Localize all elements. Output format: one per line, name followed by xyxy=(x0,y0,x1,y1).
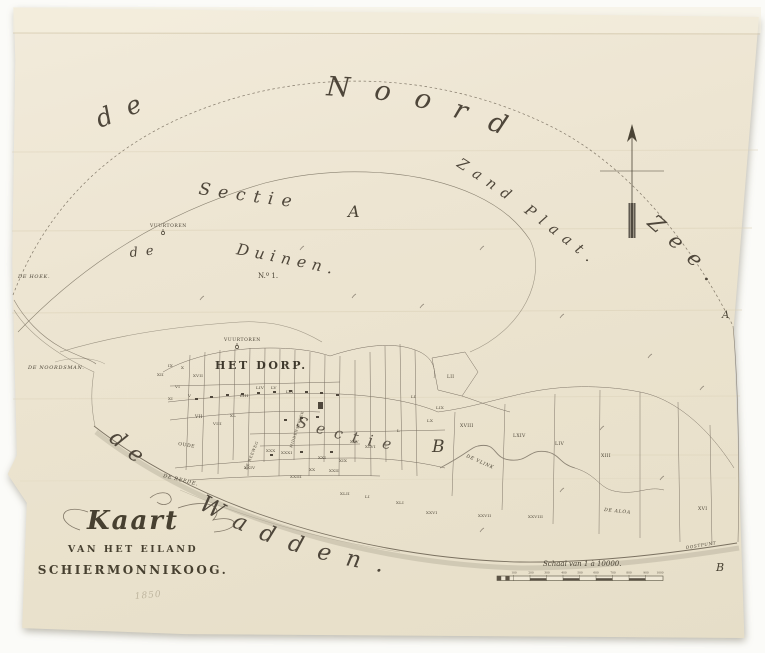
sectie-b-letter: B xyxy=(431,437,445,457)
scanned-map-page: Schaal van 1 à 10000. Noord Zee. Zand Pl… xyxy=(0,0,765,653)
map-label: LVI xyxy=(286,389,294,394)
map-label: V xyxy=(187,393,191,398)
pencil-year: 1850 xyxy=(134,590,162,602)
map-label: LV xyxy=(271,385,277,390)
edge-marker-a: A xyxy=(721,310,729,321)
village-label: HET DORP. xyxy=(215,359,308,372)
map-label: XL xyxy=(230,413,236,418)
map-label: XVI xyxy=(698,506,707,512)
map-title: Kaart xyxy=(86,506,179,536)
lighthouse-icon xyxy=(161,229,238,349)
de-north-word: de xyxy=(91,83,160,133)
map-label: XIII xyxy=(601,453,611,459)
sea-lettering: Noord Zee. Zand Plaat. Wadden. Duinen. S… xyxy=(91,71,730,580)
duinen-word: Duinen. xyxy=(234,240,340,279)
map-label: 800 xyxy=(626,571,632,575)
map-label: 100 xyxy=(511,571,517,575)
sectie-a-letter: A xyxy=(346,202,360,221)
map-label: XVII xyxy=(193,373,203,378)
map-label: XXVII xyxy=(478,513,491,518)
map-label: XXVI xyxy=(426,510,437,515)
map-label: XXX xyxy=(266,448,275,453)
map-label: XLV xyxy=(350,439,359,444)
map-label: XII xyxy=(157,372,164,377)
zand-plaat-word: Zand Plaat. xyxy=(453,155,602,270)
map-label: XXIII xyxy=(290,474,302,479)
map-label: LIX xyxy=(436,405,444,410)
map-label: LIII xyxy=(240,393,249,398)
de-noordsman-label: DE NOORDSMAN. xyxy=(27,365,85,371)
map-label: XLII xyxy=(340,491,350,496)
map-label: LIV xyxy=(256,385,264,390)
map-label: 500 xyxy=(577,571,583,575)
map-label: VII xyxy=(194,415,203,420)
map-label: XIX xyxy=(339,458,347,463)
map-label: 600 xyxy=(593,571,599,575)
map-island-name: SCHIERMONNIKOOG. xyxy=(38,563,229,577)
scale-caption: Schaal van 1 à 10000. xyxy=(543,560,621,568)
sectie-a-word: Sectie xyxy=(197,179,300,212)
map-label: XLVI xyxy=(365,444,376,449)
sectie-b-word: Sectie xyxy=(295,413,403,455)
map-label: 300 xyxy=(544,571,550,575)
map-drawing: Schaal van 1 à 10000. Noord Zee. Zand Pl… xyxy=(0,0,765,653)
map-label: XXXI xyxy=(281,450,292,455)
zee-word: Zee. xyxy=(642,209,730,295)
map-labels-layer: VUURTORENVUURTORENN.º 1.HET DORP.DE HOEK… xyxy=(17,202,729,602)
section-number: N.º 1. xyxy=(258,272,278,280)
map-label: IX xyxy=(168,363,173,368)
map-label: XI xyxy=(168,396,173,401)
map-label: XLI xyxy=(396,500,404,505)
map-label: LXIV xyxy=(513,433,526,439)
lighthouse-south-label: VUURTOREN xyxy=(223,337,261,343)
map-label: L xyxy=(397,428,400,433)
de-hoek-label: DE HOEK. xyxy=(17,274,50,280)
map-label: XX xyxy=(309,467,315,472)
map-label: VIII xyxy=(212,421,222,426)
vlink-stream xyxy=(440,445,575,468)
map-label: 1000 xyxy=(656,571,663,575)
map-label: DE ALOA xyxy=(603,507,631,516)
lighthouse-north-label: VUURTOREN xyxy=(149,223,187,229)
map-label: VI xyxy=(174,384,180,389)
map-label: XXVIII xyxy=(528,514,543,519)
noord-word: Noord xyxy=(325,71,534,151)
map-label: XXII xyxy=(329,468,339,473)
map-label: X xyxy=(181,365,184,370)
map-label: 900 xyxy=(643,571,649,575)
map-label: 700 xyxy=(610,571,616,575)
map-label: XXIV xyxy=(244,465,255,470)
map-subtitle: VAN HET EILAND xyxy=(67,544,198,555)
map-label: LX xyxy=(427,418,433,423)
map-label: XVIII xyxy=(460,423,474,429)
edge-marker-b: B xyxy=(715,561,724,574)
map-label: 200 xyxy=(528,571,534,575)
map-label: 400 xyxy=(561,571,567,575)
map-label: XXI xyxy=(318,455,326,460)
duinen-de-word: de xyxy=(129,243,162,261)
map-label: LI xyxy=(411,394,416,399)
map-label: LI xyxy=(365,494,370,499)
map-label: LIV xyxy=(555,441,564,447)
map-label: LII xyxy=(447,375,454,380)
de-vlink-label: DE VLINK xyxy=(464,453,495,471)
